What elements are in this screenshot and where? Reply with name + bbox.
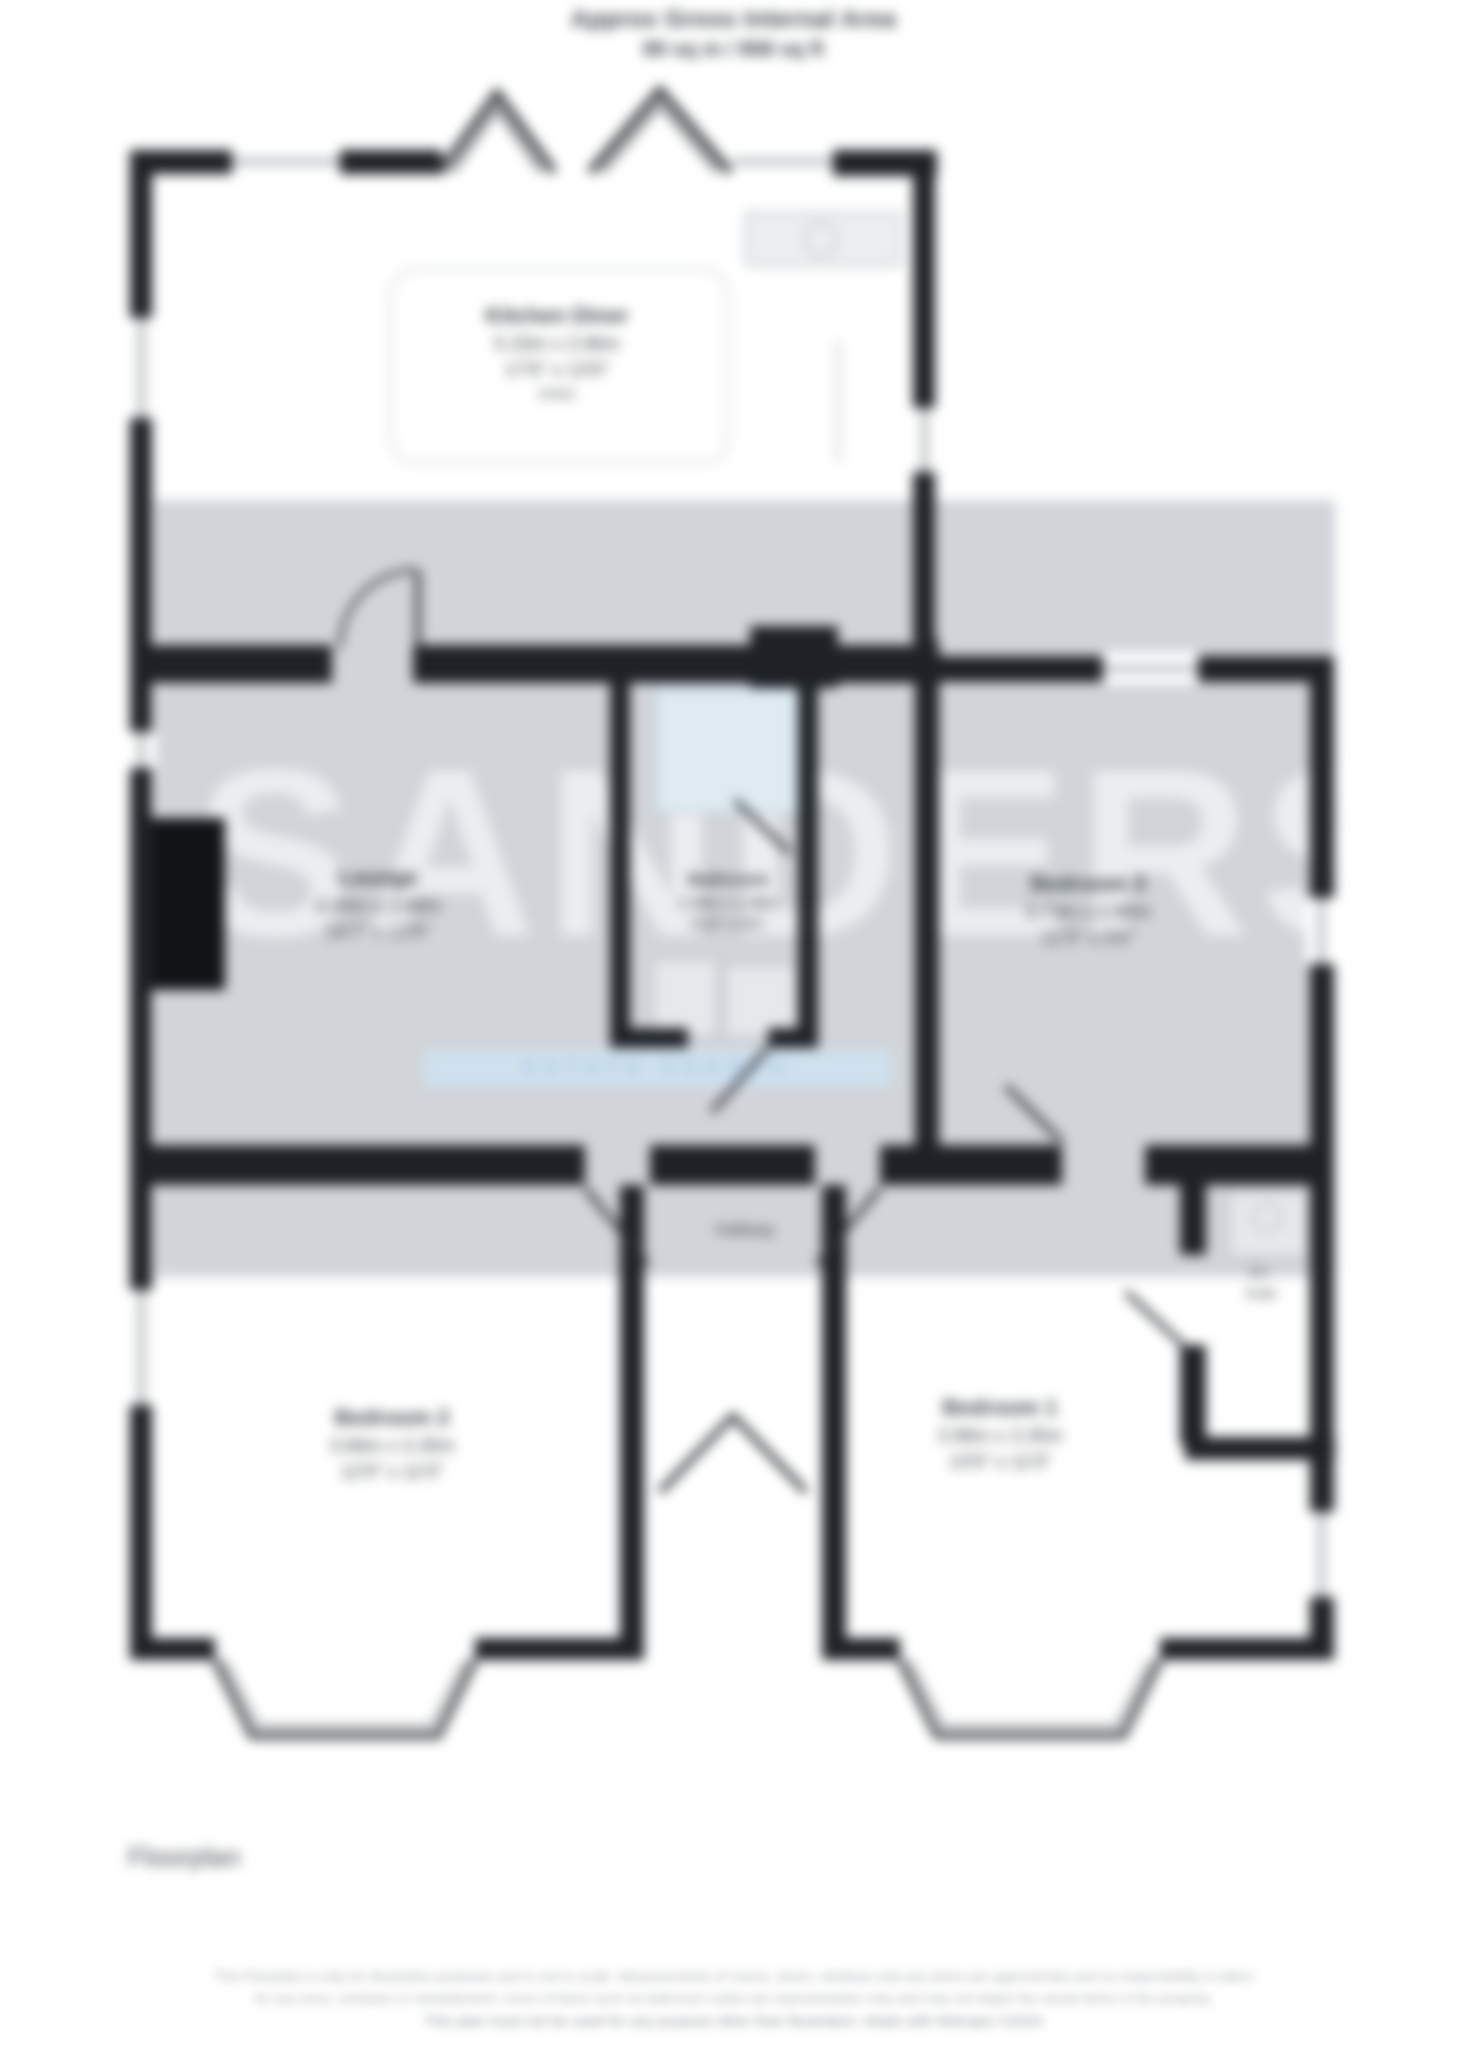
disclaimer-line-1: This Floorplan is only for illustrative …: [0, 1968, 1467, 1984]
disclaimer-line-2: for any error, omission or misstatement.…: [0, 1990, 1467, 2006]
disclaimer-line-3: This plan must not be used for any purpo…: [0, 2013, 1467, 2030]
footer-layer: This Floorplan is only for illustrative …: [0, 0, 1467, 2048]
floorplan-page: Approx Gross Internal Area 89 sq m / 958…: [0, 0, 1467, 2048]
